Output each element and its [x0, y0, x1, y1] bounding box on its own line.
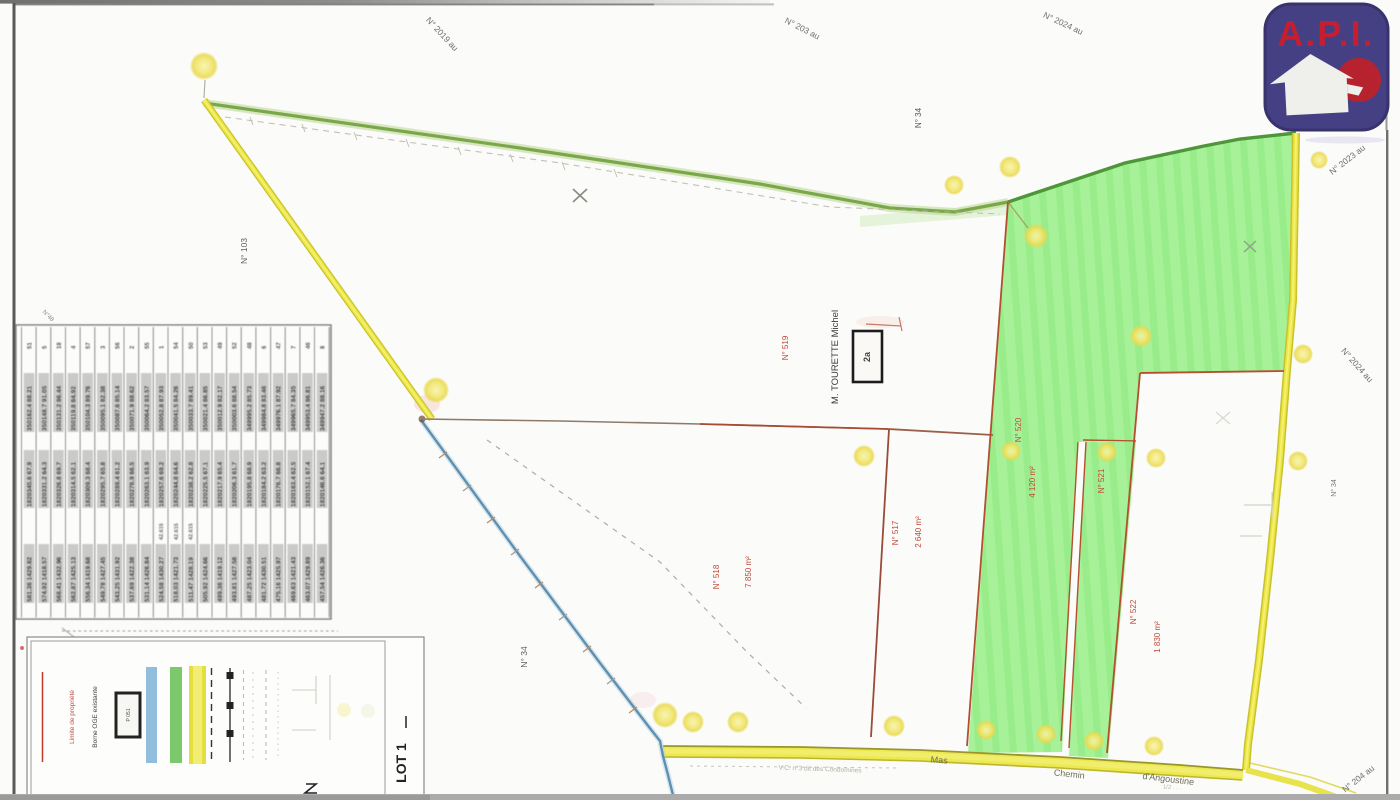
svg-text:56: 56: [116, 342, 122, 349]
svg-text:Mas: Mas: [930, 754, 948, 765]
svg-text:349953.4 86.81: 349953.4 86.81: [305, 385, 312, 431]
svg-text:57: 57: [86, 342, 92, 349]
svg-text:1820257.6 69.2: 1820257.6 69.2: [159, 461, 166, 507]
svg-text:N° 34: N° 34: [519, 646, 529, 668]
svg-text:568.41 1432.96: 568.41 1432.96: [56, 556, 63, 602]
svg-text:1 830 m²: 1 830 m²: [1153, 621, 1162, 653]
svg-text:1820225.5 67.1: 1820225.5 67.1: [202, 461, 209, 507]
svg-text:N° 103: N° 103: [239, 238, 249, 264]
svg-text:2 640 m²: 2 640 m²: [914, 516, 923, 548]
svg-text:1820244.8 64.6: 1820244.8 64.6: [173, 461, 180, 507]
svg-text:47: 47: [277, 342, 283, 349]
svg-text:350021.4 86.85: 350021.4 86.85: [202, 385, 209, 431]
svg-text:1820326.8 69.7: 1820326.8 69.7: [56, 461, 63, 507]
svg-text:49: 49: [218, 342, 224, 349]
svg-text:2a: 2a: [862, 351, 872, 362]
svg-text:46: 46: [306, 342, 312, 349]
svg-text:349965.7 84.35: 349965.7 84.35: [290, 385, 297, 431]
svg-text:350033.7 89.41: 350033.7 89.41: [188, 385, 195, 431]
svg-text:7 850 m²: 7 850 m²: [744, 556, 753, 588]
svg-text:457.54 1426.36: 457.54 1426.36: [320, 556, 327, 602]
svg-text:531.14 1426.84: 531.14 1426.84: [144, 556, 151, 602]
svg-text:562.87 1425.13: 562.87 1425.13: [71, 556, 78, 602]
svg-text:349947.2 88.16: 349947.2 88.16: [320, 385, 327, 431]
svg-text:350104.3 89.76: 350104.3 89.76: [85, 385, 92, 431]
svg-text:349995.2 85.73: 349995.2 85.73: [246, 385, 253, 431]
svg-text:1820195.8 68.9: 1820195.8 68.9: [246, 461, 253, 507]
svg-text:M. TOURETTE Michel: M. TOURETTE Michel: [830, 310, 841, 404]
svg-text:Limite de propriété: Limite de propriété: [69, 690, 76, 744]
svg-text:537.69 1422.38: 537.69 1422.38: [129, 556, 136, 602]
svg-text:Borne OGE existante: Borne OGE existante: [92, 686, 99, 748]
svg-text:518.03 1421.73: 518.03 1421.73: [173, 556, 180, 602]
svg-text:543.25 1431.92: 543.25 1431.92: [115, 556, 122, 602]
svg-text:N° 522: N° 522: [1129, 599, 1138, 624]
svg-text:LOT 1: LOT 1: [393, 743, 409, 783]
svg-text:349984.8 83.46: 349984.8 83.46: [261, 385, 268, 431]
svg-text:463.07 1429.89: 463.07 1429.89: [305, 556, 312, 602]
svg-text:51: 51: [28, 342, 34, 349]
svg-text:487.25 1423.04: 487.25 1423.04: [246, 556, 253, 602]
svg-text:350003.6 88.54: 350003.6 88.54: [232, 385, 239, 431]
svg-text:475.16 1425.97: 475.16 1425.97: [276, 556, 283, 602]
svg-text:1820152.1 67.4: 1820152.1 67.4: [305, 461, 312, 507]
svg-text:1820331.2 64.3: 1820331.2 64.3: [41, 461, 48, 507]
svg-text:54: 54: [174, 342, 180, 349]
svg-text:350095.1 82.38: 350095.1 82.38: [100, 385, 107, 431]
svg-text:N° 517: N° 517: [891, 520, 900, 545]
svg-text:A.P.I.: A.P.I.: [1277, 13, 1374, 54]
svg-text:1/2 . . .: 1/2 . . .: [1163, 785, 1182, 792]
svg-text:1820206.3 61.7: 1820206.3 61.7: [232, 461, 239, 507]
svg-text:42.615: 42.615: [189, 523, 195, 540]
svg-text:581.36 1429.82: 581.36 1429.82: [27, 556, 34, 602]
svg-text:55: 55: [145, 342, 151, 349]
svg-text:N° 518: N° 518: [712, 564, 721, 589]
svg-text:1820345.6 67.9: 1820345.6 67.9: [27, 461, 34, 507]
svg-text:N° 34: N° 34: [914, 107, 923, 128]
svg-text:556.34 1419.68: 556.34 1419.68: [85, 556, 92, 602]
svg-text:1820314.5 62.1: 1820314.5 62.1: [71, 461, 78, 507]
svg-text:50: 50: [189, 342, 195, 349]
svg-text:1820217.9 65.4: 1820217.9 65.4: [217, 461, 224, 507]
svg-text:4 120 m²: 4 120 m²: [1028, 466, 1037, 498]
svg-text:42.615: 42.615: [159, 523, 165, 540]
svg-text:P 051: P 051: [126, 708, 132, 721]
svg-text:350071.9 88.62: 350071.9 88.62: [129, 385, 136, 431]
svg-text:42.615: 42.615: [174, 523, 180, 540]
svg-text:53: 53: [203, 342, 209, 349]
svg-text:N° 521: N° 521: [1097, 468, 1106, 493]
svg-text:1820146.6 64.1: 1820146.6 64.1: [320, 461, 327, 507]
svg-text:350064.2 83.57: 350064.2 83.57: [144, 385, 151, 431]
svg-text:350131.2 86.44: 350131.2 86.44: [56, 385, 63, 431]
svg-text:48: 48: [247, 342, 253, 349]
svg-text:549.78 1427.45: 549.78 1427.45: [100, 556, 107, 602]
svg-text:N° 34: N° 34: [1330, 479, 1338, 497]
svg-text:N° 520: N° 520: [1014, 417, 1023, 442]
svg-text:574.92 1418.57: 574.92 1418.57: [41, 556, 48, 602]
svg-text:1820184.2 63.2: 1820184.2 63.2: [261, 461, 268, 507]
svg-text:499.36 1419.12: 499.36 1419.12: [217, 556, 224, 602]
svg-text:349976.1 87.92: 349976.1 87.92: [276, 385, 283, 431]
svg-text:1820276.9 66.5: 1820276.9 66.5: [129, 461, 136, 507]
svg-text:350087.6 85.14: 350087.6 85.14: [115, 385, 122, 431]
svg-text:481.72 1430.51: 481.72 1430.51: [261, 556, 268, 602]
svg-text:493.81 1427.58: 493.81 1427.58: [232, 556, 239, 602]
svg-text:511.47 1428.19: 511.47 1428.19: [188, 557, 195, 602]
svg-text:1820263.1 63.9: 1820263.1 63.9: [144, 461, 151, 507]
svg-text:350052.8 87.93: 350052.8 87.93: [159, 385, 166, 431]
svg-text:N° 519: N° 519: [781, 335, 790, 360]
svg-text:350012.9 82.17: 350012.9 82.17: [217, 385, 224, 431]
svg-text:1820176.7 66.8: 1820176.7 66.8: [276, 461, 283, 507]
svg-text:52: 52: [233, 342, 239, 349]
svg-text:350148.7 91.05: 350148.7 91.05: [41, 385, 48, 431]
svg-text:350162.4 88.21: 350162.4 88.21: [27, 385, 34, 431]
svg-text:1820309.3 68.4: 1820309.3 68.4: [85, 461, 92, 507]
svg-text:350119.8 84.92: 350119.8 84.92: [71, 386, 78, 431]
svg-text:505.92 1424.66: 505.92 1424.66: [202, 556, 209, 602]
svg-text:1820163.4 62.5: 1820163.4 62.5: [290, 461, 297, 507]
svg-text:1820295.7 65.8: 1820295.7 65.8: [100, 461, 107, 507]
svg-text:350041.5 84.26: 350041.5 84.26: [173, 385, 180, 431]
svg-text:1820238.2 62.8: 1820238.2 62.8: [188, 461, 195, 507]
svg-text:18: 18: [57, 342, 63, 349]
svg-text:469.63 1421.43: 469.63 1421.43: [290, 556, 297, 602]
svg-text:524.58 1430.27: 524.58 1430.27: [159, 556, 166, 602]
svg-text:1820288.4 61.2: 1820288.4 61.2: [115, 461, 122, 507]
